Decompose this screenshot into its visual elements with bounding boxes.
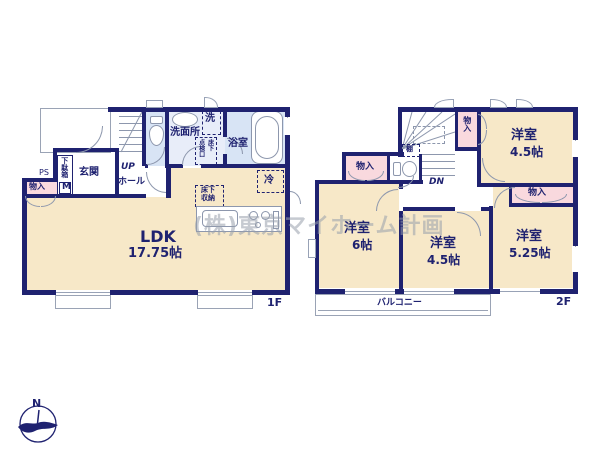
hall-ldk-door-arc — [146, 172, 166, 193]
wall — [201, 164, 290, 168]
watermark-text: (株)東京マイホーム計画 — [193, 208, 444, 240]
terrace-step — [197, 295, 253, 309]
wall — [455, 147, 480, 151]
window — [500, 289, 540, 294]
wall — [342, 152, 404, 156]
wall — [53, 148, 57, 182]
hall-label: ホール — [118, 178, 145, 188]
wall — [419, 154, 422, 184]
wall — [398, 107, 578, 112]
toilet2-bowl-icon — [402, 161, 417, 177]
room-45top-size: 4.5帖 — [510, 146, 543, 159]
floor2-label: 2F — [556, 296, 571, 308]
window — [345, 289, 395, 294]
wall — [223, 154, 227, 166]
compass-north-label: N — [32, 398, 41, 410]
wall — [223, 107, 227, 137]
stairs-2f-run — [421, 148, 455, 176]
wall — [489, 206, 493, 289]
ps-label: PS — [39, 169, 49, 178]
sink-icon — [172, 112, 198, 127]
back-door-arc — [290, 191, 301, 204]
toilet2-tank-icon — [393, 162, 401, 176]
window — [572, 246, 579, 272]
bath-label: 浴室 — [228, 138, 248, 149]
window — [146, 100, 163, 108]
shelf-label: 棚 — [406, 146, 413, 154]
window — [56, 290, 110, 295]
room-6-size: 6帖 — [352, 239, 372, 252]
genkan-label: 玄関 — [79, 167, 99, 178]
window — [284, 117, 291, 135]
wall — [509, 203, 578, 207]
window — [490, 99, 507, 108]
wall — [387, 154, 390, 184]
toilet-tank-icon — [150, 116, 163, 124]
meter-label: M — [62, 183, 71, 193]
window — [308, 239, 316, 258]
room-525-size: 5.25帖 — [509, 247, 551, 260]
window — [404, 289, 454, 294]
closet-h-label: 物入 — [356, 163, 374, 173]
ldk-size: 17.75帖 — [128, 247, 182, 261]
closet-v-label: 物入 — [462, 116, 471, 132]
toilet2-door-arc — [398, 176, 414, 188]
closet-525-label: 物入 — [528, 189, 546, 199]
room-45top-name: 洋室 — [511, 129, 537, 143]
ldk-name: LDK — [140, 228, 176, 246]
wall — [165, 107, 169, 166]
room-45b-size: 4.5帖 — [427, 254, 460, 267]
balcony-railing — [318, 310, 488, 311]
window — [434, 99, 454, 108]
inspection-hatch-col1: 床下 — [206, 139, 213, 151]
up-label: UP — [121, 163, 135, 173]
window — [198, 290, 252, 295]
wall — [166, 164, 171, 198]
terrace-step — [55, 295, 111, 309]
shoe-cabinet-label: 下駄箱 — [60, 157, 68, 178]
fridge-label: 冷 — [264, 175, 274, 186]
bathtub-inner-icon — [255, 116, 279, 159]
senmenjo-label: 洗面所 — [170, 127, 200, 138]
stairs-opening — [413, 126, 445, 144]
inspection-hatch-col2: 点検口 — [197, 139, 204, 157]
dn-label: DN — [429, 178, 444, 188]
balcony-label: バルコニー — [377, 299, 422, 309]
floor1-label: 1F — [267, 297, 282, 309]
window — [572, 140, 579, 157]
wall — [115, 148, 119, 198]
wall — [142, 107, 146, 166]
wall — [108, 107, 290, 112]
window — [516, 99, 533, 108]
window — [204, 97, 218, 108]
closet-1f-label: 物入 — [29, 183, 45, 192]
floor-storage-line2: 収納 — [201, 195, 215, 203]
wall — [489, 184, 493, 187]
floor-plan-canvas: 下駄箱 M PS 物入 玄関 UP ホール 洗 洗面所 点検口 床下 浴室 冷 … — [0, 0, 600, 450]
wall — [455, 109, 458, 151]
wall — [398, 107, 402, 157]
washer-label: 洗 — [205, 113, 215, 124]
room-525-name: 洋室 — [516, 230, 542, 244]
